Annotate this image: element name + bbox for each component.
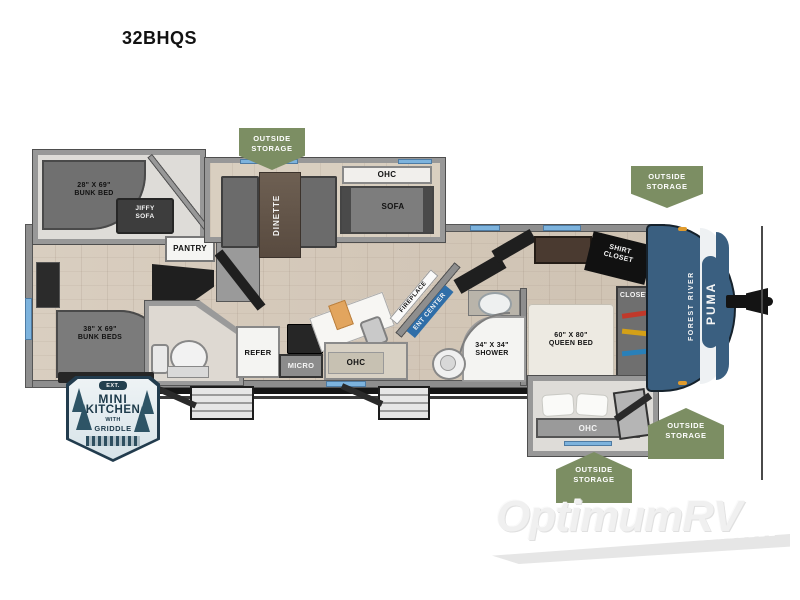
top-wall-window-b [543, 225, 581, 231]
bunk-beds-38-label: 38" X 69" BUNK BEDS [58, 326, 142, 343]
outside-storage-right-line2: STORAGE [646, 182, 687, 191]
pantry-label: PANTRY [165, 244, 215, 254]
model-title: 32BHQS [122, 28, 197, 50]
badge-skyline [86, 436, 140, 446]
watermark-road-dashes [505, 534, 775, 552]
outside-storage-badge-bottom-right: OUTSIDE STORAGE [648, 408, 724, 459]
bedroom-dresser [534, 236, 592, 264]
badge-with-label: WITH [76, 417, 150, 424]
queen-bed-label: 60" X 80" QUEEN BED [528, 332, 614, 349]
half-bath-toilet-tank [167, 366, 209, 378]
outside-storage-bm-line2: STORAGE [573, 475, 614, 484]
bunk-bed-28-name: BUNK BED [74, 190, 113, 197]
bunk-bed-28-size: 28" X 69" [77, 182, 110, 189]
outside-storage-badge-right: OUTSIDE STORAGE [631, 166, 703, 208]
floorplan-canvas: 32BHQS 28" X 69" BUNK BED JIFFY SOFA PAN… [0, 0, 800, 600]
tongue-jack-line [761, 226, 763, 480]
sofa-label: SOFA [360, 202, 426, 212]
outside-storage-top-line2: STORAGE [251, 144, 292, 153]
queen-bed-name: QUEEN BED [549, 340, 593, 347]
micro-label: MICRO [279, 361, 323, 370]
tv-cabinet [36, 262, 60, 308]
outside-storage-top-line1: OUTSIDE [253, 134, 291, 143]
badge-ext-label: EXT. [99, 383, 127, 390]
outside-storage-badge-bottom-mid: OUTSIDE STORAGE [556, 452, 632, 503]
sofa-armrest-left [342, 188, 351, 232]
dinette-ohc-label: OHC [342, 170, 432, 180]
outside-storage-right-line1: OUTSIDE [648, 172, 686, 181]
shower-name: SHOWER [475, 350, 508, 357]
left-wall-window [25, 298, 32, 340]
entry-step-main [190, 386, 254, 420]
badge-kitchen-label: KITCHEN [76, 404, 150, 418]
queen-pillow-left [541, 393, 574, 417]
bunk-beds-38-size: 38" X 69" [83, 326, 116, 333]
queen-pillow-right [575, 393, 608, 417]
shower-label: 34" X 34" SHOWER [462, 342, 522, 359]
outside-storage-br-line2: STORAGE [665, 431, 706, 440]
outside-storage-bm-line1: OUTSIDE [575, 465, 613, 474]
watermark-road [492, 534, 790, 564]
top-wall-window-a [470, 225, 500, 231]
queen-bed-size: 60" X 80" [554, 332, 587, 339]
hitch-ball [764, 297, 773, 306]
bunk-bed-28-label: 28" X 69" BUNK BED [52, 182, 136, 199]
outside-storage-br-line1: OUTSIDE [667, 421, 705, 430]
shower-size: 34" X 34" [475, 342, 508, 349]
dinette-bench-right [299, 176, 337, 248]
cap-model-label: PUMA [704, 266, 718, 340]
jiffy-sofa-line1: JIFFY [135, 205, 154, 212]
cap-marker-light-top [678, 227, 687, 231]
refer-label: REFER [236, 348, 280, 357]
kitchen-ohc-label: OHC [328, 358, 384, 368]
jiffy-sofa-line2: SOFA [136, 213, 155, 220]
watermark-logo: OptimumRV [496, 492, 796, 542]
bunk-beds-38-name: BUNK BEDS [78, 334, 122, 341]
dinette-label: DINETTE [272, 182, 282, 248]
jiffy-sofa-label: JIFFY SOFA [118, 205, 172, 221]
badge-griddle-label: GRIDDLE [76, 424, 150, 433]
dinette-bench-left [221, 176, 259, 248]
queen-slide-window [564, 441, 612, 446]
cap-marker-light-bottom [678, 381, 687, 385]
entry-step-bedroom [378, 386, 430, 420]
bath-toilet-seat [440, 355, 456, 371]
cap-brand-label: FOREST RIVER [688, 248, 696, 364]
sofa-window [398, 159, 432, 164]
